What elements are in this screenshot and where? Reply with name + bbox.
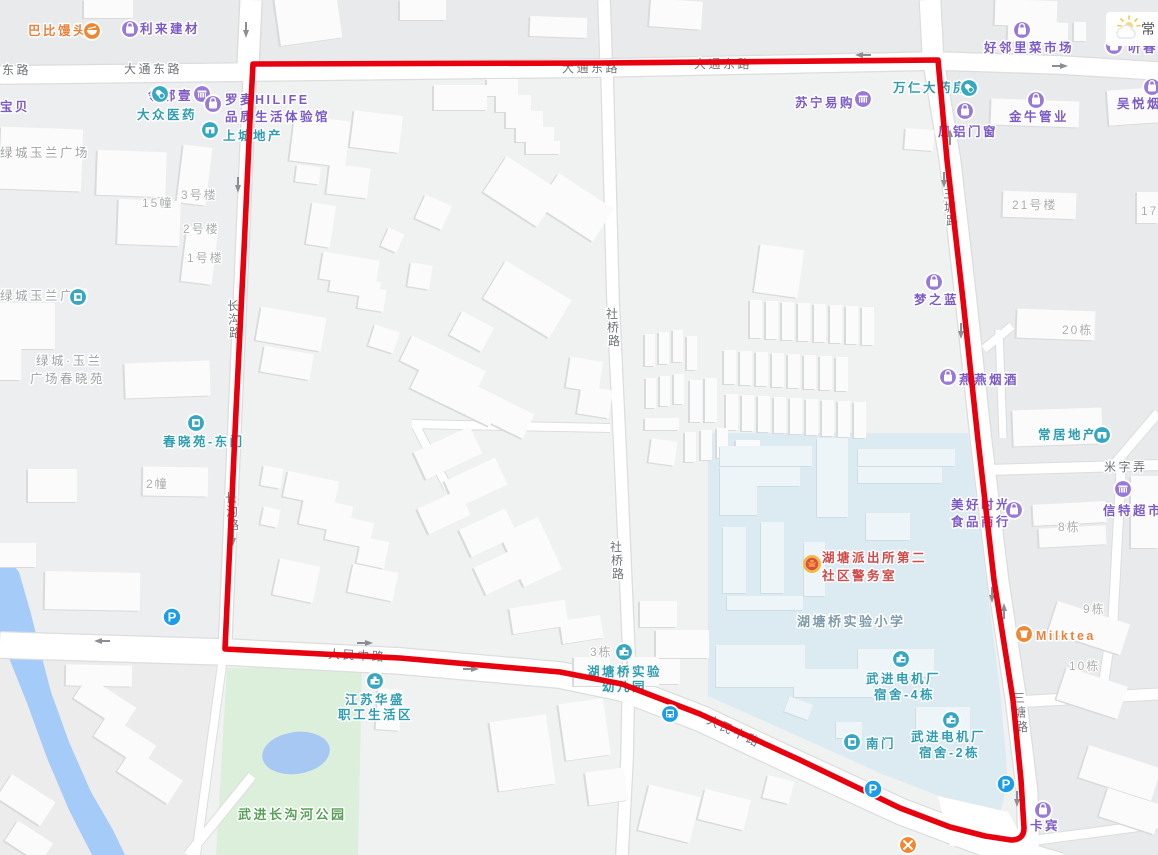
svg-text:21号楼: 21号楼 <box>1012 197 1057 212</box>
svg-text:9栋: 9栋 <box>1083 601 1106 616</box>
svg-text:大众医药: 大众医药 <box>137 107 197 122</box>
svg-text:燕燕烟酒: 燕燕烟酒 <box>959 372 1019 387</box>
svg-text:罗麦HILIFE: 罗麦HILIFE <box>225 92 310 107</box>
svg-text:信特超市: 信特超市 <box>1103 503 1158 518</box>
svg-text:美好时光: 美好时光 <box>951 497 1011 512</box>
svg-text:利来建材: 利来建材 <box>140 21 200 36</box>
svg-text:湖塘派出所第二: 湖塘派出所第二 <box>822 550 927 565</box>
svg-text:广场春晓苑: 广场春晓苑 <box>30 372 105 386</box>
svg-text:吴悦烟酒: 吴悦烟酒 <box>1117 96 1158 111</box>
svg-text:20栋: 20栋 <box>1062 322 1093 337</box>
svg-text:武进长沟河公园: 武进长沟河公园 <box>238 807 347 822</box>
svg-text:武进电机厂: 武进电机厂 <box>911 729 986 744</box>
svg-text:3栋: 3栋 <box>590 644 613 659</box>
svg-text:湖塘桥实验小学: 湖塘桥实验小学 <box>797 614 906 629</box>
svg-text:社区警务室: 社区警务室 <box>821 568 897 583</box>
svg-text:大通东路: 大通东路 <box>124 61 182 76</box>
svg-text:Milktea: Milktea <box>1036 629 1096 643</box>
svg-text:卡宾: 卡宾 <box>1030 818 1060 833</box>
svg-text:职工生活区: 职工生活区 <box>338 707 413 722</box>
svg-text:米字弄: 米字弄 <box>1104 459 1148 474</box>
svg-text:社桥路: 社桥路 <box>610 539 624 581</box>
svg-text:宿舍-4栋: 宿舍-4栋 <box>874 687 935 702</box>
svg-text:南门: 南门 <box>866 736 896 751</box>
svg-text:绿城·玉兰: 绿城·玉兰 <box>36 353 103 368</box>
svg-text:巴比馒头: 巴比馒头 <box>28 23 88 38</box>
svg-text:宿舍-2栋: 宿舍-2栋 <box>919 745 980 760</box>
svg-text:2幢: 2幢 <box>146 476 169 491</box>
svg-text:10栋: 10栋 <box>1069 658 1100 673</box>
svg-text:品质生活体验馆: 品质生活体验馆 <box>225 109 330 124</box>
svg-text:常州: 常州 <box>1141 21 1158 37</box>
svg-text:绿城玉兰广场: 绿城玉兰广场 <box>0 145 90 160</box>
svg-text:1号楼: 1号楼 <box>187 250 224 265</box>
svg-text:万仁大药房: 万仁大药房 <box>892 80 968 95</box>
svg-text:3号楼: 3号楼 <box>181 187 218 202</box>
svg-text:17栋: 17栋 <box>1141 203 1158 218</box>
svg-text:武进电机厂: 武进电机厂 <box>866 671 941 686</box>
svg-text:江苏华盛: 江苏华盛 <box>345 692 405 707</box>
svg-text:金牛管业: 金牛管业 <box>1008 109 1069 124</box>
svg-text:上城地产: 上城地产 <box>223 128 283 143</box>
svg-text:8栋: 8栋 <box>1058 519 1081 534</box>
svg-text:2号楼: 2号楼 <box>183 221 220 236</box>
svg-text:常居地产: 常居地产 <box>1038 427 1098 442</box>
svg-text:社桥路: 社桥路 <box>606 306 620 348</box>
svg-text:15幢: 15幢 <box>142 195 173 210</box>
svg-text:梦之蓝: 梦之蓝 <box>914 292 959 307</box>
svg-text:好邻里菜市场: 好邻里菜市场 <box>983 40 1074 55</box>
svg-text:东路: 东路 <box>2 62 31 77</box>
svg-text:宝贝: 宝贝 <box>0 99 30 114</box>
svg-text:苏宁易购: 苏宁易购 <box>795 95 855 110</box>
svg-text:食品商行: 食品商行 <box>950 514 1011 529</box>
